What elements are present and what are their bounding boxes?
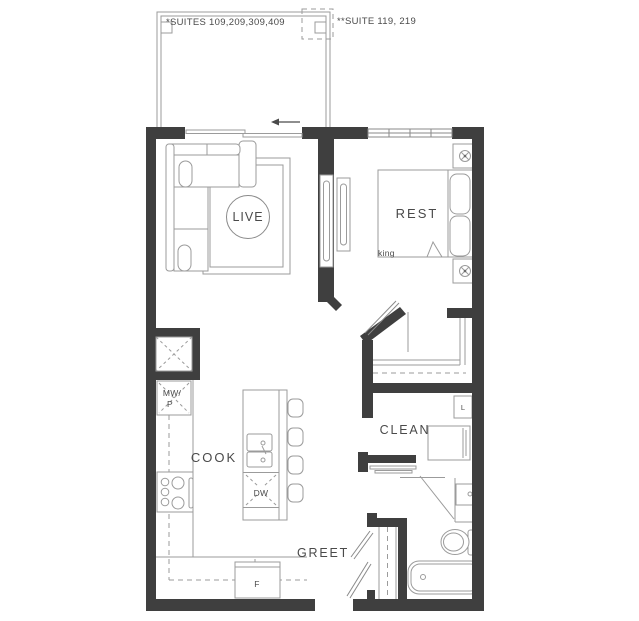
bathroom-pocket-door (370, 466, 416, 473)
stove-handle (189, 478, 193, 508)
wall-top (452, 127, 484, 139)
balcony-inner-rail (161, 16, 326, 133)
live-room (166, 141, 290, 274)
closet-angled-wall (360, 307, 406, 344)
hall-wall (362, 340, 373, 418)
entry-closet-doors (379, 527, 396, 599)
floor-plan: *SUITES 109,209,309,409 **SUITE 119, 219… (0, 0, 639, 621)
entry-door-leaves (347, 531, 373, 598)
clean-room (428, 396, 472, 460)
pillow (450, 174, 470, 214)
suite-variant-label: **SUITE 119, 219 (337, 16, 416, 27)
suite-variant-dashed-outline (302, 9, 333, 39)
rest-bottom-wall (447, 308, 472, 318)
dishwasher-label: DW (254, 488, 269, 498)
wall-divider-tip (318, 293, 342, 311)
balcony-post-right (315, 22, 326, 33)
bath-wall (368, 455, 416, 463)
wall-right (472, 127, 484, 611)
wall-top (146, 127, 185, 139)
entry-closet-wall (367, 590, 375, 601)
island (243, 390, 287, 520)
stool (288, 399, 303, 417)
bathtub (408, 561, 482, 594)
mech-closet-wall (192, 335, 200, 373)
patio-sliding-door (186, 119, 302, 138)
wall-top (302, 127, 368, 139)
mech-closet-wall (146, 371, 200, 380)
bathroom (400, 476, 482, 594)
fridge-label: F (254, 579, 260, 589)
range-stove (157, 472, 193, 512)
pantry-label: P (167, 399, 173, 409)
washer (428, 426, 470, 460)
stool (288, 484, 303, 502)
stool (288, 456, 303, 474)
wall-bottom (146, 599, 315, 611)
bar-stools (288, 399, 303, 502)
linen-label: L (461, 403, 465, 412)
labels: *SUITES 109,209,309,409 **SUITE 119, 219… (163, 16, 465, 589)
mech-closet-wall (146, 328, 200, 337)
rest-room-label: REST (396, 206, 439, 221)
live-room-label: LIVE (232, 210, 263, 224)
fireplace-niche (320, 175, 333, 267)
bedroom-dresser (337, 178, 350, 251)
mech-closet-interior (156, 337, 192, 371)
greet-room-label: GREET (297, 546, 349, 560)
entry-closet-wall (398, 525, 407, 602)
arrow-icon (271, 119, 279, 126)
microwave-label: MW/ (163, 388, 182, 398)
clean-room-label: CLEAN (380, 423, 431, 437)
wall-left (146, 127, 156, 611)
pillow (450, 216, 470, 256)
stool (288, 428, 303, 446)
bedroom-window (368, 129, 452, 137)
clean-top-wall (372, 383, 472, 393)
balcony-outer-rail (157, 12, 330, 133)
microwave-pantry (157, 381, 191, 415)
balcony-suites-label: *SUITES 109,209,309,409 (166, 17, 285, 28)
floor-plan-page: *SUITES 109,209,309,409 **SUITE 119, 219… (0, 0, 639, 621)
cook-room-label: COOK (191, 450, 237, 465)
kitchen (156, 380, 307, 598)
bath-wall (358, 452, 368, 472)
bed-size-label: king (378, 248, 395, 258)
